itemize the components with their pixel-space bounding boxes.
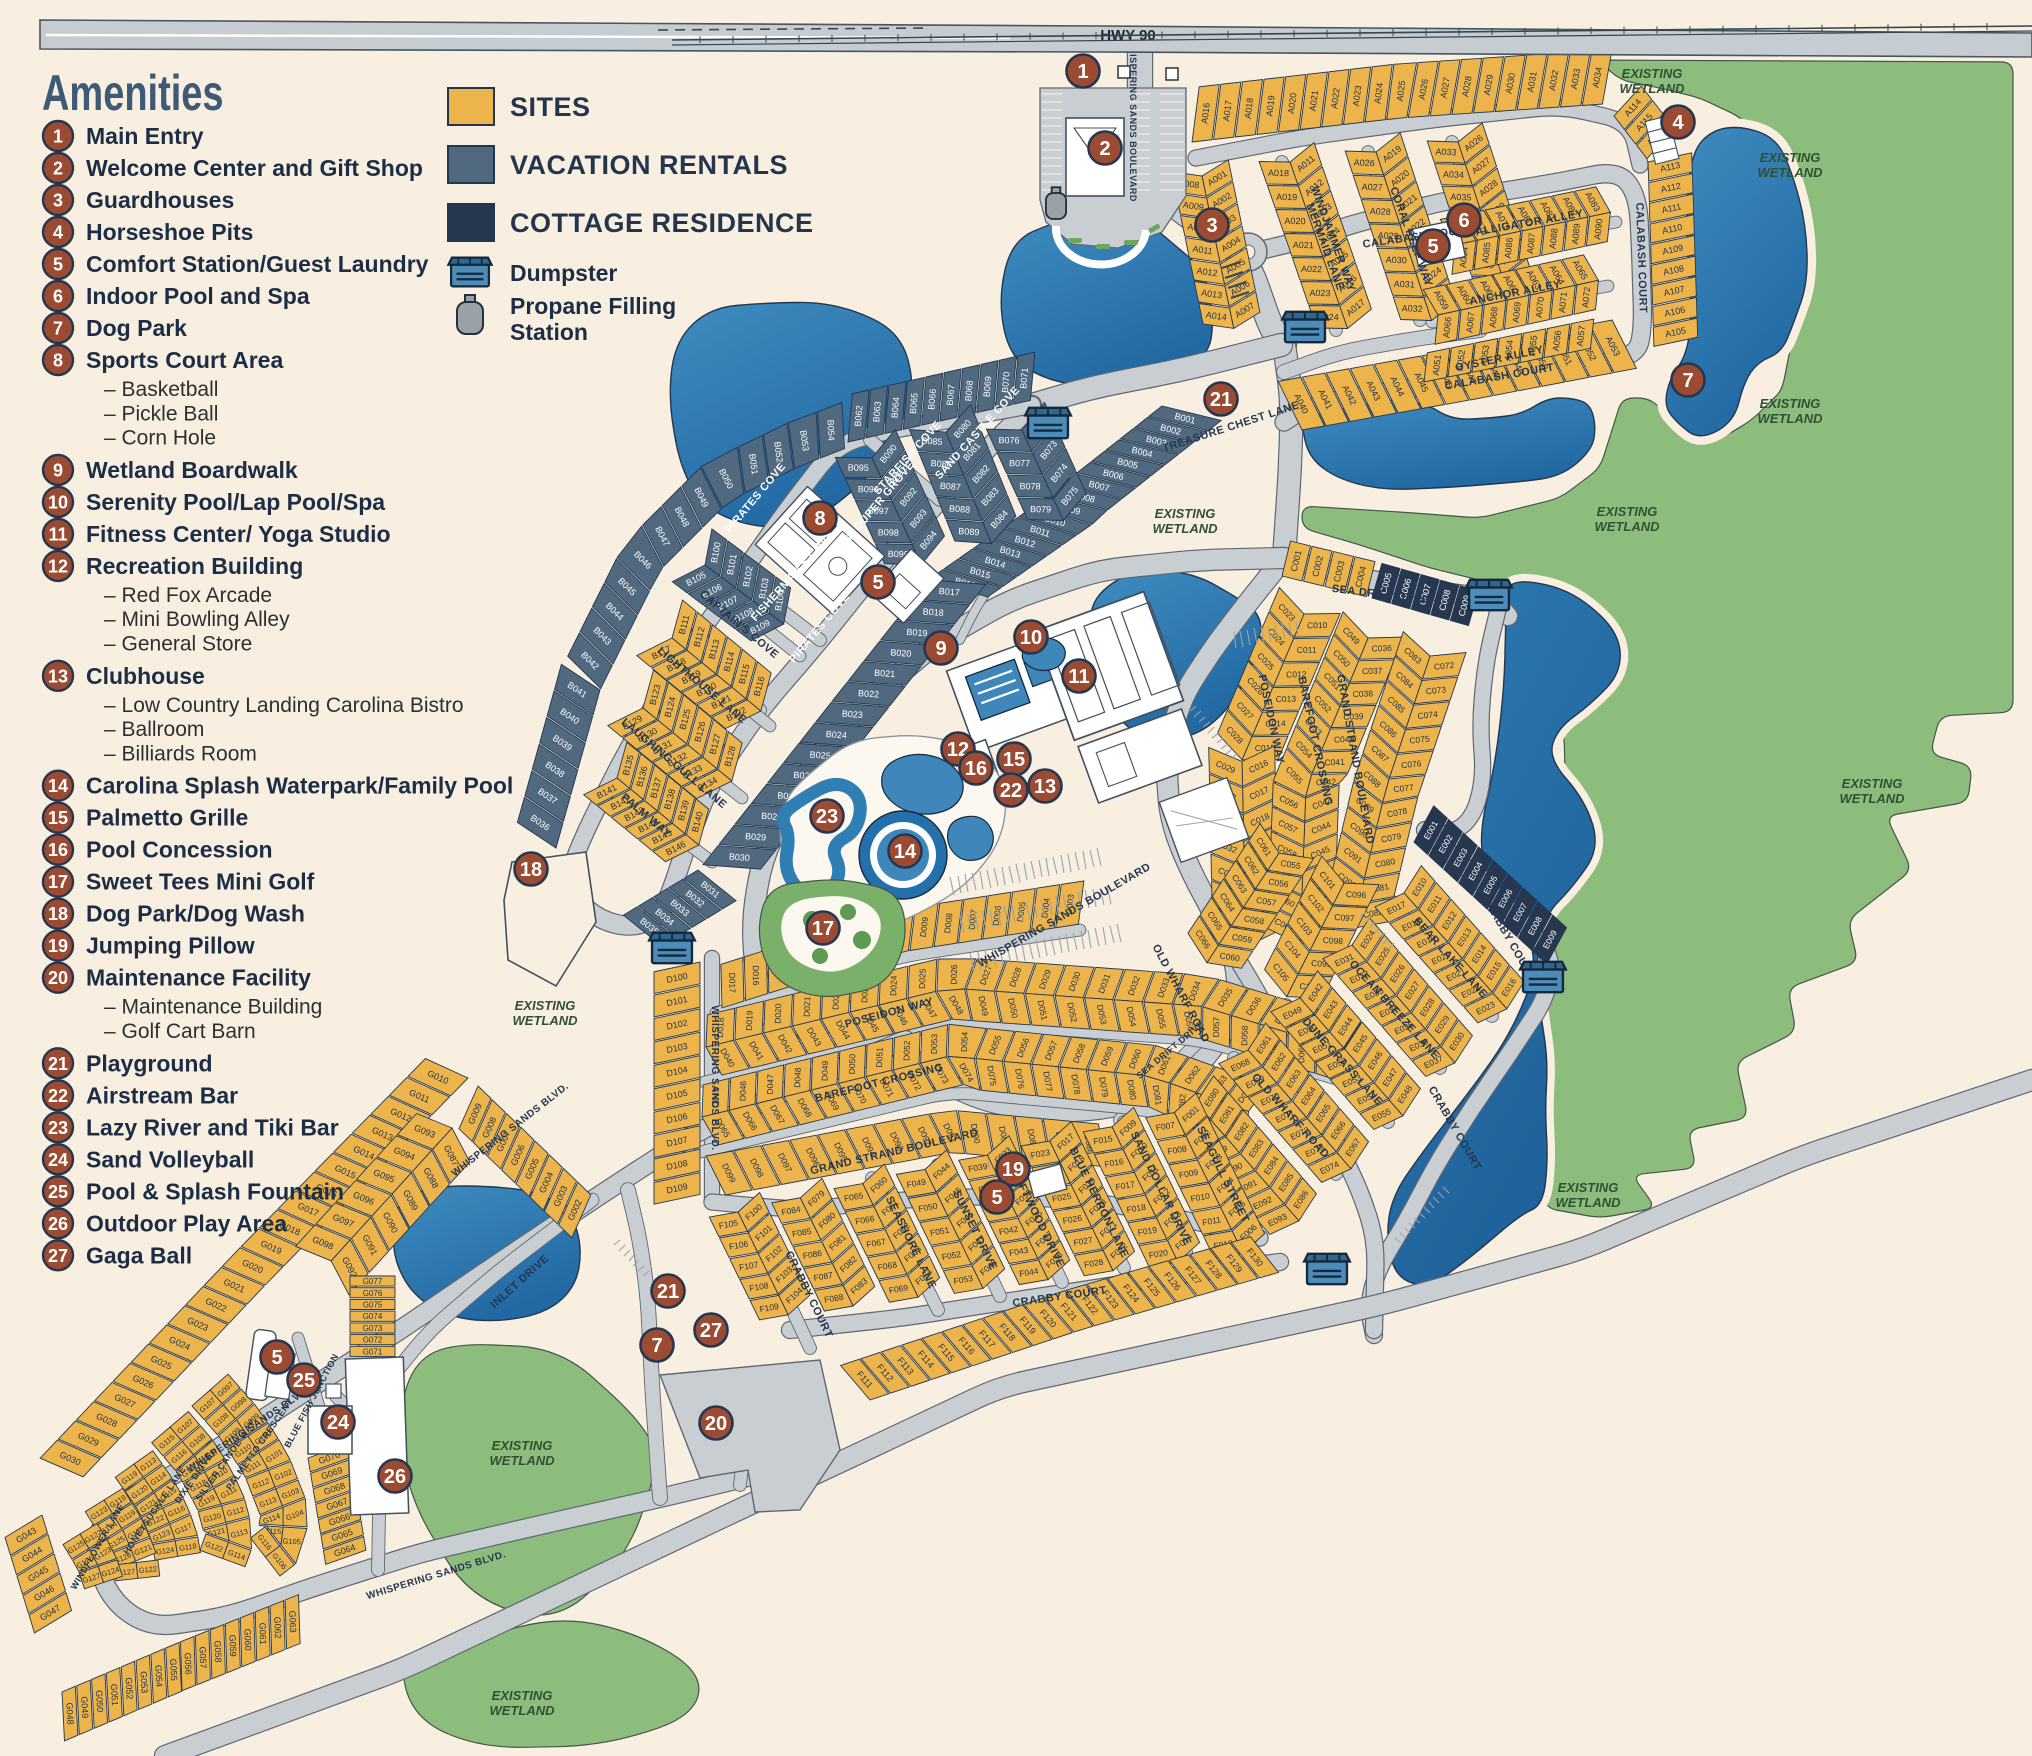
svg-text:B064: B064 — [890, 397, 902, 419]
svg-text:EXISTINGWETLAND: EXISTINGWETLAND — [1153, 506, 1219, 536]
svg-text:G076: G076 — [363, 1289, 383, 1298]
svg-text:14: 14 — [48, 776, 68, 796]
svg-text:D020: D020 — [773, 1003, 784, 1024]
svg-text:Maintenance Facility: Maintenance Facility — [86, 965, 311, 991]
svg-text:19: 19 — [48, 936, 68, 956]
svg-text:Recreation Building: Recreation Building — [86, 553, 303, 579]
svg-text:C072: C072 — [1433, 660, 1455, 672]
svg-text:11: 11 — [1068, 666, 1089, 688]
svg-text:25: 25 — [48, 1182, 68, 1202]
svg-text:21: 21 — [1210, 389, 1232, 411]
svg-text:4: 4 — [53, 223, 63, 243]
svg-text:B054: B054 — [825, 419, 836, 441]
svg-text:D024: D024 — [888, 975, 899, 996]
svg-text:26: 26 — [384, 1466, 406, 1488]
svg-text:EXISTINGWETLAND: EXISTINGWETLAND — [1595, 504, 1661, 534]
svg-text:B024: B024 — [825, 729, 847, 740]
svg-text:COTTAGE RESIDENCE: COTTAGE RESIDENCE — [510, 208, 814, 238]
svg-text:B076: B076 — [998, 435, 1019, 445]
svg-text:21: 21 — [48, 1054, 68, 1074]
svg-text:A019: A019 — [1276, 192, 1297, 202]
svg-text:20: 20 — [48, 968, 68, 988]
svg-text:Indoor Pool and Spa: Indoor Pool and Spa — [86, 283, 310, 309]
svg-text:G075: G075 — [363, 1301, 383, 1310]
svg-text:A032: A032 — [1402, 303, 1423, 314]
svg-text:1: 1 — [53, 127, 63, 147]
svg-text:EXISTINGWETLAND: EXISTINGWETLAND — [1758, 396, 1824, 426]
svg-text:B065: B065 — [908, 392, 920, 414]
svg-text:B023: B023 — [842, 709, 864, 720]
svg-text:D049: D049 — [819, 1060, 830, 1081]
svg-text:A028: A028 — [1370, 206, 1391, 217]
svg-text:G050: G050 — [94, 1690, 105, 1713]
svg-text:9: 9 — [935, 638, 946, 660]
svg-text:B019: B019 — [906, 627, 928, 638]
svg-text:7: 7 — [1682, 370, 1693, 392]
svg-text:6: 6 — [1458, 210, 1469, 232]
svg-text:D026: D026 — [948, 964, 959, 985]
svg-text:– General Store: – General Store — [104, 633, 252, 656]
svg-text:VACATION RENTALS: VACATION RENTALS — [510, 150, 788, 180]
svg-text:22: 22 — [1000, 780, 1022, 802]
svg-text:21: 21 — [657, 1281, 679, 1303]
svg-text:4: 4 — [1672, 112, 1684, 134]
svg-text:A031: A031 — [1394, 279, 1415, 290]
svg-text:B017: B017 — [938, 586, 960, 597]
svg-text:Station: Station — [510, 319, 588, 345]
svg-text:B088: B088 — [949, 503, 971, 514]
svg-text:C010: C010 — [1307, 620, 1328, 630]
svg-text:G077: G077 — [363, 1277, 383, 1286]
svg-text:– Corn Hole: – Corn Hole — [104, 427, 216, 450]
svg-text:Dog Park/Dog Wash: Dog Park/Dog Wash — [86, 901, 305, 927]
svg-text:Fitness Center/ Yoga Studio: Fitness Center/ Yoga Studio — [86, 521, 391, 547]
svg-text:15: 15 — [48, 808, 68, 828]
svg-text:EXISTINGWETLAND: EXISTINGWETLAND — [490, 1688, 556, 1718]
svg-text:C077: C077 — [1393, 782, 1415, 794]
svg-text:B078: B078 — [1019, 481, 1040, 491]
svg-text:26: 26 — [48, 1214, 68, 1234]
svg-text:Palmetto Grille: Palmetto Grille — [86, 805, 248, 831]
svg-text:C075: C075 — [1409, 734, 1431, 746]
svg-text:B020: B020 — [890, 647, 912, 658]
svg-text:C097: C097 — [1334, 912, 1355, 923]
svg-text:Pool Concession: Pool Concession — [86, 837, 273, 863]
svg-text:Sports Court Area: Sports Court Area — [86, 347, 283, 373]
svg-text:SITES: SITES — [510, 92, 591, 122]
svg-text:B077: B077 — [1009, 458, 1030, 468]
svg-text:WHISPERING SANDS BLVD.: WHISPERING SANDS BLVD. — [709, 1005, 720, 1150]
svg-text:D053: D053 — [929, 1033, 940, 1054]
svg-text:– Billiards Room: – Billiards Room — [104, 742, 257, 765]
svg-text:3: 3 — [1206, 215, 1217, 237]
svg-text:C036: C036 — [1371, 643, 1392, 654]
svg-text:G059: G059 — [227, 1634, 238, 1656]
svg-text:C011: C011 — [1297, 645, 1317, 655]
svg-text:EXISTINGWETLAND: EXISTINGWETLAND — [1758, 150, 1824, 180]
svg-text:Propane Filling: Propane Filling — [510, 293, 676, 319]
svg-text:D017: D017 — [727, 972, 737, 993]
svg-text:A018: A018 — [1268, 168, 1289, 178]
svg-text:9: 9 — [53, 460, 63, 480]
svg-text:– Basketball: – Basketball — [104, 378, 218, 401]
svg-text:EXISTINGWETLAND: EXISTINGWETLAND — [490, 1438, 556, 1468]
svg-text:14: 14 — [894, 841, 917, 863]
svg-text:6: 6 — [53, 287, 63, 307]
svg-text:B062: B062 — [853, 405, 865, 427]
svg-text:13: 13 — [1034, 776, 1056, 798]
svg-text:G055: G055 — [168, 1658, 179, 1681]
svg-text:D016: D016 — [751, 965, 761, 986]
svg-text:A026: A026 — [1354, 158, 1375, 169]
svg-text:Guardhouses: Guardhouses — [86, 187, 234, 213]
svg-text:D051: D051 — [874, 1047, 885, 1068]
svg-text:12: 12 — [48, 556, 68, 576]
svg-text:– Mini Bowling Alley: – Mini Bowling Alley — [104, 608, 290, 631]
svg-text:Clubhouse: Clubhouse — [86, 663, 205, 689]
svg-text:D048: D048 — [792, 1067, 803, 1088]
svg-text:A035: A035 — [1450, 192, 1471, 203]
svg-text:24: 24 — [327, 1412, 350, 1434]
svg-text:Pool & Splash Fountain: Pool & Splash Fountain — [86, 1178, 344, 1204]
svg-text:C073: C073 — [1425, 684, 1447, 696]
svg-text:B089: B089 — [958, 526, 980, 537]
svg-text:G051: G051 — [109, 1684, 120, 1707]
svg-text:A034: A034 — [1443, 169, 1464, 180]
svg-text:10: 10 — [48, 492, 68, 512]
svg-text:G122: G122 — [138, 1564, 157, 1575]
svg-text:1: 1 — [1077, 61, 1088, 83]
svg-text:B018: B018 — [922, 606, 944, 617]
svg-text:15: 15 — [1003, 749, 1025, 771]
svg-text:B098: B098 — [878, 527, 899, 537]
svg-text:C038: C038 — [1352, 688, 1373, 699]
svg-text:– Red Fox Arcade: – Red Fox Arcade — [104, 584, 272, 607]
svg-text:17: 17 — [48, 872, 68, 892]
svg-text:G061: G061 — [257, 1623, 268, 1645]
svg-text:Dog Park: Dog Park — [86, 315, 187, 341]
svg-text:5: 5 — [872, 572, 883, 594]
svg-text:16: 16 — [965, 758, 987, 780]
svg-text:10: 10 — [1020, 627, 1042, 649]
svg-text:C098: C098 — [1322, 935, 1343, 946]
svg-text:B068: B068 — [963, 380, 975, 402]
svg-text:B071: B071 — [1018, 367, 1030, 389]
svg-text:– Low Country Landing Carolina: – Low Country Landing Carolina Bistro — [104, 694, 464, 717]
svg-text:A021: A021 — [1293, 240, 1314, 250]
svg-text:27: 27 — [48, 1246, 68, 1266]
svg-text:Main Entry: Main Entry — [86, 123, 204, 149]
svg-text:– Pickle Ball: – Pickle Ball — [104, 402, 218, 425]
svg-text:G063: G063 — [287, 1611, 298, 1633]
svg-text:25: 25 — [293, 1370, 315, 1392]
svg-text:B021: B021 — [874, 668, 896, 679]
svg-text:A023: A023 — [1309, 288, 1330, 298]
svg-text:27: 27 — [700, 1320, 722, 1342]
svg-text:C096: C096 — [1346, 889, 1367, 900]
svg-text:B087: B087 — [940, 481, 962, 492]
svg-text:A030: A030 — [1386, 255, 1407, 266]
svg-text:G060: G060 — [242, 1629, 253, 1651]
svg-text:D050: D050 — [847, 1054, 858, 1075]
svg-text:G062: G062 — [272, 1617, 283, 1639]
svg-text:19: 19 — [1002, 1159, 1024, 1181]
svg-text:B079: B079 — [1030, 504, 1051, 514]
svg-text:B067: B067 — [945, 384, 957, 406]
svg-text:G074: G074 — [363, 1312, 383, 1321]
svg-text:EXISTINGWETLAND: EXISTINGWETLAND — [1556, 1180, 1622, 1210]
svg-text:B063: B063 — [871, 401, 883, 423]
svg-text:2: 2 — [53, 159, 63, 179]
svg-text:B029: B029 — [745, 831, 767, 842]
svg-text:23: 23 — [816, 806, 838, 828]
svg-text:18: 18 — [48, 904, 68, 924]
svg-text:C076: C076 — [1401, 758, 1423, 770]
svg-text:C013: C013 — [1276, 694, 1297, 704]
svg-text:G048: G048 — [64, 1702, 75, 1725]
svg-text:B095: B095 — [848, 463, 869, 473]
svg-text:C037: C037 — [1362, 666, 1383, 677]
svg-text:11: 11 — [48, 524, 67, 544]
svg-text:24: 24 — [48, 1150, 68, 1170]
svg-text:Airstream Bar: Airstream Bar — [86, 1082, 238, 1108]
svg-text:Carolina Splash Waterpark/Fami: Carolina Splash Waterpark/Family Pool — [86, 773, 513, 799]
svg-text:13: 13 — [48, 666, 68, 686]
svg-text:D058: D058 — [1239, 1025, 1249, 1046]
svg-text:8: 8 — [814, 508, 825, 530]
svg-text:5: 5 — [1427, 236, 1438, 258]
svg-text:D025: D025 — [917, 968, 928, 989]
svg-text:A020: A020 — [1284, 216, 1305, 226]
svg-text:5: 5 — [53, 255, 63, 275]
svg-text:D046: D046 — [737, 1080, 748, 1101]
svg-text:16: 16 — [48, 840, 68, 860]
svg-text:EXISTINGWETLAND: EXISTINGWETLAND — [1620, 66, 1686, 96]
svg-text:Welcome Center and Gift Shop: Welcome Center and Gift Shop — [86, 155, 423, 181]
svg-text:18: 18 — [520, 859, 542, 881]
svg-text:G071: G071 — [363, 1347, 383, 1356]
svg-text:B069: B069 — [982, 376, 994, 398]
svg-text:EXISTINGWETLAND: EXISTINGWETLAND — [513, 998, 579, 1028]
svg-text:D019: D019 — [744, 1010, 755, 1031]
svg-text:A033: A033 — [1435, 147, 1456, 158]
svg-text:5: 5 — [271, 1347, 282, 1369]
svg-text:Gaga Ball: Gaga Ball — [86, 1242, 192, 1268]
svg-text:D057: D057 — [1211, 1017, 1221, 1038]
svg-text:G073: G073 — [363, 1324, 383, 1333]
svg-text:WHISPERING SANDS BOULEVARD: WHISPERING SANDS BOULEVARD — [1128, 38, 1138, 202]
svg-text:Outdoor Play Area: Outdoor Play Area — [86, 1210, 287, 1236]
svg-text:Sand Volleyball: Sand Volleyball — [86, 1146, 254, 1172]
svg-text:G105: G105 — [282, 1537, 301, 1547]
svg-text:17: 17 — [812, 918, 834, 940]
svg-text:8: 8 — [53, 351, 63, 371]
svg-text:G049: G049 — [79, 1696, 90, 1719]
svg-text:3: 3 — [53, 191, 63, 211]
svg-text:Serenity Pool/Lap Pool/Spa: Serenity Pool/Lap Pool/Spa — [86, 489, 385, 515]
svg-text:Wetland Boardwalk: Wetland Boardwalk — [86, 457, 298, 483]
svg-text:Lazy River and Tiki Bar: Lazy River and Tiki Bar — [86, 1114, 339, 1140]
svg-text:C041: C041 — [1324, 757, 1345, 768]
svg-text:Comfort Station/Guest Laundry: Comfort Station/Guest Laundry — [86, 251, 429, 277]
svg-text:D047: D047 — [765, 1074, 776, 1095]
svg-text:A022: A022 — [1301, 264, 1322, 274]
svg-text:20: 20 — [705, 1413, 727, 1435]
svg-text:G058: G058 — [213, 1640, 224, 1662]
svg-text:Amenities: Amenities — [42, 66, 224, 121]
svg-text:7: 7 — [53, 319, 63, 339]
svg-text:D054: D054 — [959, 1031, 970, 1052]
svg-text:D021: D021 — [802, 996, 813, 1017]
svg-text:Playground: Playground — [86, 1050, 213, 1076]
svg-text:G072: G072 — [363, 1336, 383, 1345]
svg-text:2: 2 — [1099, 138, 1110, 160]
svg-text:G053: G053 — [138, 1671, 149, 1694]
svg-text:G052: G052 — [124, 1677, 135, 1700]
svg-text:D052: D052 — [901, 1040, 912, 1061]
svg-text:Jumping Pillow: Jumping Pillow — [86, 933, 255, 959]
svg-text:G054: G054 — [153, 1665, 164, 1688]
svg-text:G056: G056 — [183, 1652, 194, 1674]
svg-text:– Golf Cart Barn: – Golf Cart Barn — [104, 1020, 256, 1043]
svg-text:B030: B030 — [729, 852, 751, 863]
svg-text:Horseshoe Pits: Horseshoe Pits — [86, 219, 253, 245]
svg-text:G057: G057 — [198, 1646, 209, 1668]
svg-text:A027: A027 — [1362, 182, 1383, 193]
svg-text:23: 23 — [48, 1118, 68, 1138]
svg-text:22: 22 — [48, 1086, 68, 1106]
svg-text:B066: B066 — [926, 388, 938, 410]
svg-text:EXISTINGWETLAND: EXISTINGWETLAND — [1840, 776, 1906, 806]
svg-text:7: 7 — [651, 1335, 662, 1357]
svg-text:– Ballroom: – Ballroom — [104, 718, 204, 741]
svg-text:B022: B022 — [858, 688, 880, 699]
svg-text:Sweet Tees Mini Golf: Sweet Tees Mini Golf — [86, 869, 315, 895]
svg-text:– Maintenance Building: – Maintenance Building — [104, 996, 322, 1019]
svg-text:C074: C074 — [1417, 709, 1439, 721]
svg-text:Dumpster: Dumpster — [510, 260, 617, 286]
svg-text:5: 5 — [991, 1187, 1002, 1209]
